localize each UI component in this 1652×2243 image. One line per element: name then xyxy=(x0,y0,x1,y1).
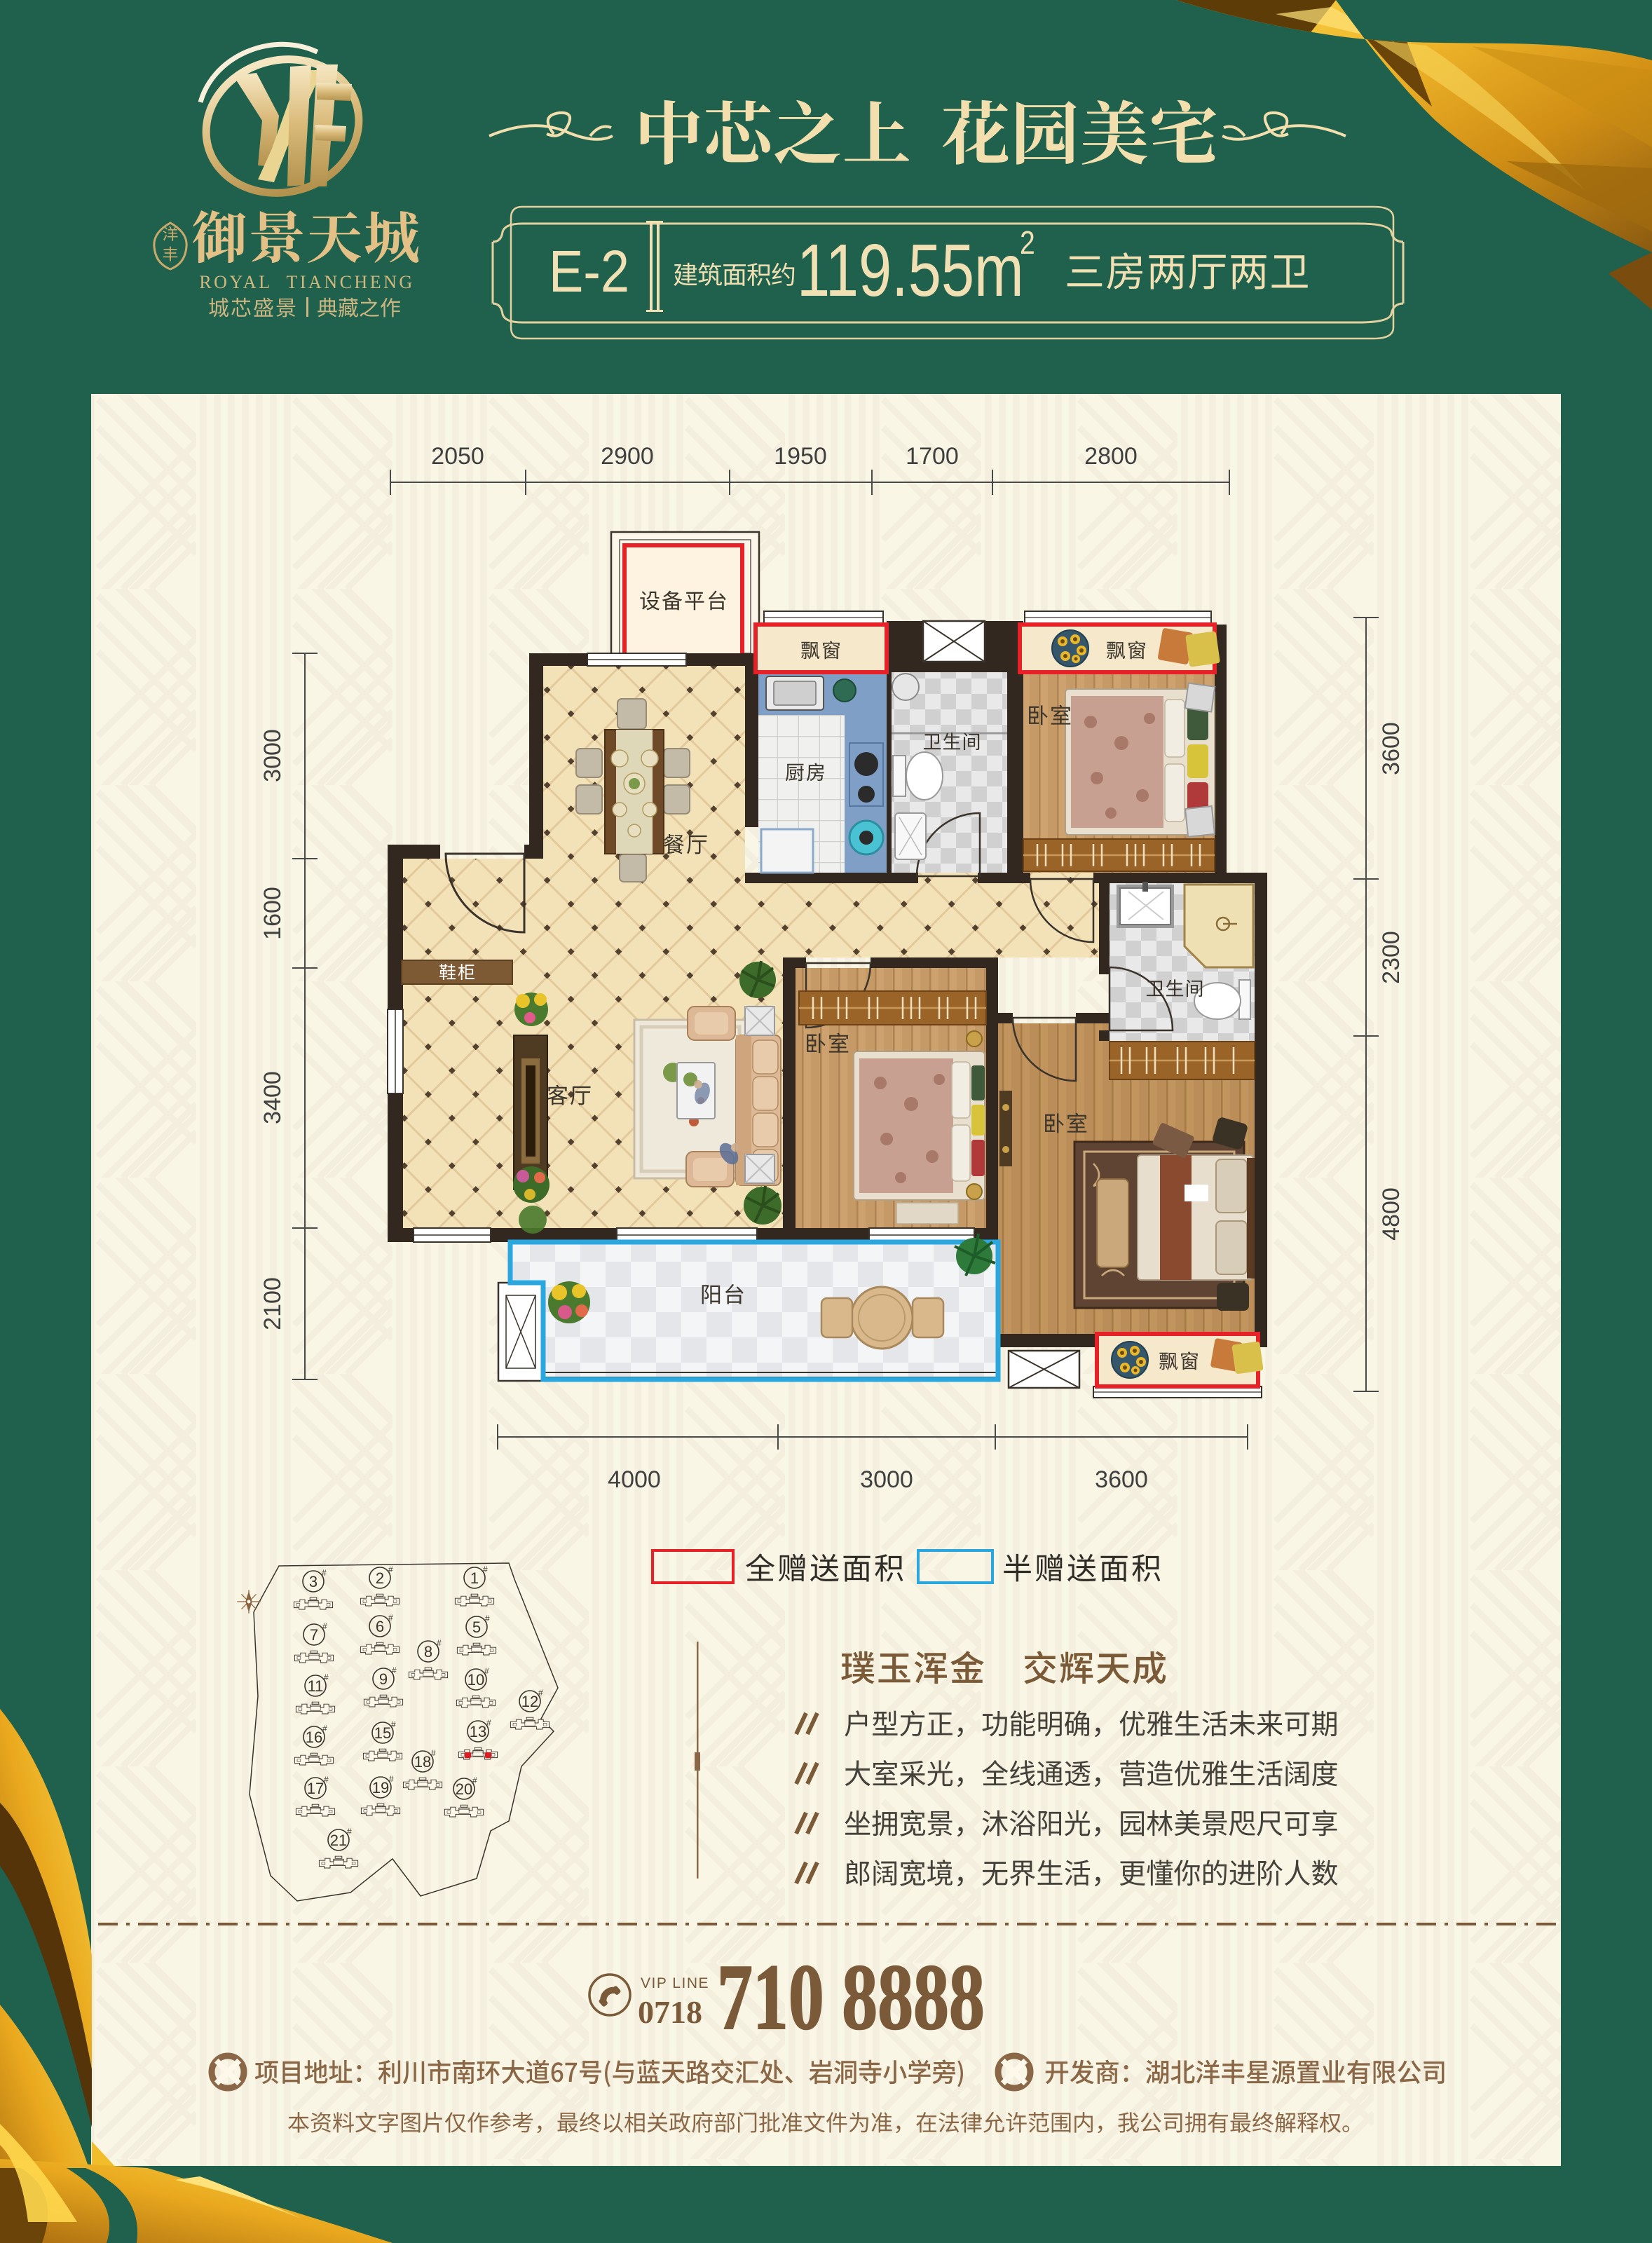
svg-text:#: # xyxy=(322,1724,327,1733)
svg-text:#: # xyxy=(347,1827,352,1836)
svg-text:#: # xyxy=(431,1748,436,1758)
svg-text:4800: 4800 xyxy=(1378,1187,1405,1241)
svg-text:13: 13 xyxy=(470,1723,486,1740)
svg-text:1700: 1700 xyxy=(906,443,959,470)
svg-text:2100: 2100 xyxy=(259,1277,286,1330)
svg-text:5: 5 xyxy=(472,1618,481,1636)
svg-text:7: 7 xyxy=(310,1626,318,1644)
svg-text:11: 11 xyxy=(308,1677,324,1695)
svg-text:#: # xyxy=(391,1719,396,1729)
svg-text:#: # xyxy=(388,1564,393,1574)
svg-text:3000: 3000 xyxy=(860,1466,913,1493)
svg-text:2050: 2050 xyxy=(431,443,484,470)
svg-text:3400: 3400 xyxy=(259,1071,286,1124)
svg-text:1950: 1950 xyxy=(774,443,827,470)
svg-text:#: # xyxy=(392,1665,397,1675)
svg-text:9: 9 xyxy=(379,1670,388,1688)
svg-text:#: # xyxy=(486,1718,491,1728)
svg-text:1600: 1600 xyxy=(259,887,286,940)
svg-text:#: # xyxy=(389,1774,394,1784)
svg-text:10: 10 xyxy=(467,1671,484,1689)
svg-text:#: # xyxy=(472,1775,477,1785)
svg-text:12: 12 xyxy=(521,1693,538,1710)
svg-text:3600: 3600 xyxy=(1378,722,1405,775)
svg-text:710 8888: 710 8888 xyxy=(717,1945,985,2050)
svg-text:#: # xyxy=(484,1666,489,1676)
svg-text:119.55m: 119.55m xyxy=(797,229,1024,312)
svg-text:2: 2 xyxy=(376,1569,384,1587)
svg-text:ROYAL TIANCHENG: ROYAL TIANCHENG xyxy=(199,272,414,292)
svg-text:4000: 4000 xyxy=(608,1466,661,1493)
svg-text:1: 1 xyxy=(470,1569,479,1587)
svg-text:#: # xyxy=(324,1672,329,1682)
svg-text:#: # xyxy=(322,1568,327,1578)
svg-text:#: # xyxy=(388,1613,393,1623)
svg-text:#: # xyxy=(324,1775,329,1785)
svg-text:#: # xyxy=(322,1621,327,1631)
svg-text:#: # xyxy=(483,1564,488,1574)
svg-text:2300: 2300 xyxy=(1378,931,1405,984)
svg-text:8: 8 xyxy=(424,1643,432,1661)
svg-text:#: # xyxy=(485,1614,490,1623)
svg-text:20: 20 xyxy=(456,1780,472,1798)
svg-text:3: 3 xyxy=(309,1573,318,1590)
svg-text:3000: 3000 xyxy=(259,729,286,782)
svg-text:3600: 3600 xyxy=(1095,1466,1148,1493)
svg-text:2900: 2900 xyxy=(601,443,654,470)
svg-text:2: 2 xyxy=(1020,225,1035,261)
svg-text:#: # xyxy=(538,1688,543,1698)
svg-text:2800: 2800 xyxy=(1084,443,1138,470)
svg-text:E-2: E-2 xyxy=(549,238,629,304)
svg-text:18: 18 xyxy=(414,1753,431,1771)
svg-text:VIP LINE: VIP LINE xyxy=(641,1975,709,1991)
svg-text:21: 21 xyxy=(330,1832,347,1849)
svg-text:16: 16 xyxy=(306,1729,322,1746)
svg-text:15: 15 xyxy=(374,1724,391,1742)
svg-text:6: 6 xyxy=(376,1618,384,1635)
svg-text:19: 19 xyxy=(372,1779,389,1797)
svg-text:0718: 0718 xyxy=(638,1994,702,2030)
svg-text:17: 17 xyxy=(307,1780,324,1797)
svg-text:#: # xyxy=(437,1638,442,1648)
